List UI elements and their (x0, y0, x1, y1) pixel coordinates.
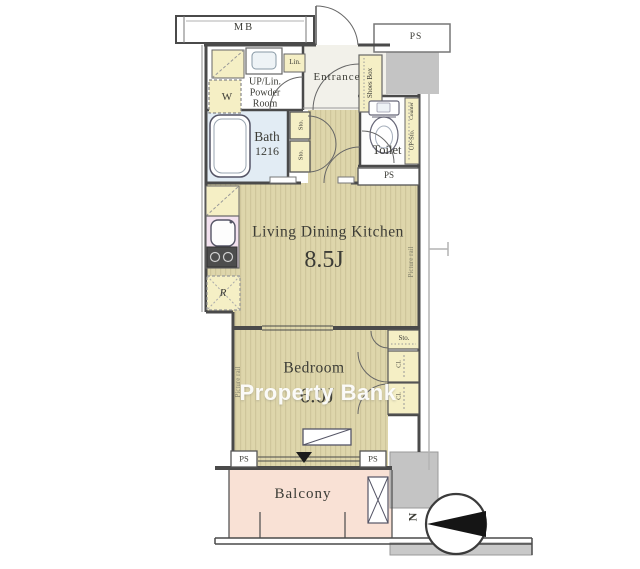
wall-niche-1 (270, 177, 296, 183)
bath-label: Bath 1216 (254, 130, 280, 158)
shoes-box-label: Shoes Box (367, 68, 375, 98)
bath-size-label: 1216 (254, 145, 280, 158)
closet-storage-label: Sto. (398, 335, 409, 343)
powder-room-label: UP/Lin. Powder Room (249, 77, 281, 110)
hall-storage-label-2: Sto. (297, 150, 304, 160)
meter-box-label: MB (234, 22, 254, 34)
north-label: N (406, 513, 419, 522)
entrance-label: Entrance (313, 71, 360, 83)
pipe-shaft-bottom-left-label: PS (239, 454, 248, 463)
north-compass (426, 494, 486, 554)
balcony-hatch (368, 477, 388, 523)
pipe-shaft-toilet-label: PS (384, 171, 394, 181)
hall-storage-label-1: Sto. (297, 120, 304, 130)
washing-machine-label: W (222, 91, 232, 103)
toilet-label: Toilet (373, 144, 402, 158)
linen-label: Lin. (289, 59, 300, 67)
pipe-shaft-bottom-right-label: PS (368, 454, 377, 463)
kitchen-counter (206, 186, 239, 268)
ldk-label: Living Dining Kitchen (252, 223, 404, 240)
closet-label-1: Cl. (395, 360, 402, 368)
floor-plan: MB PS UP/Lin. Powder Room Lin. W Entranc… (0, 0, 640, 569)
floor-plan-graphic (0, 0, 640, 569)
toilet-counter-label: Counter (409, 102, 415, 120)
watermark: Property Bank (240, 380, 397, 406)
bathtub (210, 115, 250, 177)
refrigerator-label: R (220, 287, 227, 299)
balcony-label: Balcony (275, 486, 332, 503)
bedroom-label: Bedroom (283, 359, 344, 376)
ldk-size-label: 8.5J (304, 247, 343, 273)
picture-rail-label-ldk: Picture rail (408, 247, 416, 278)
pipe-shaft-top-label: PS (410, 32, 423, 42)
entrance-door (316, 6, 358, 45)
toilet-storage-label: UP-Sto. (408, 130, 415, 151)
wall-niche-2 (338, 177, 354, 183)
window-sill (303, 429, 351, 445)
